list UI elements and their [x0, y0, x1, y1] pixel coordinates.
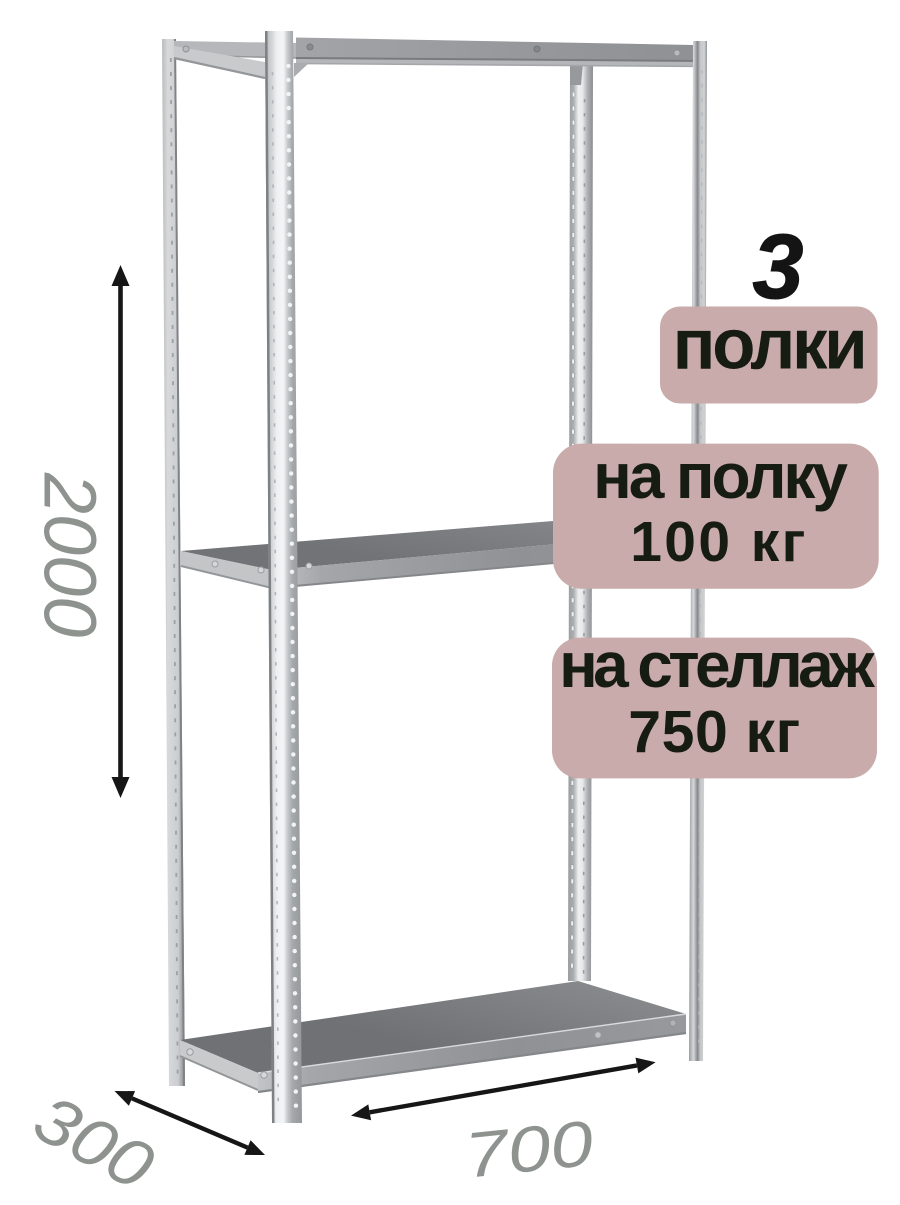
svg-text:3: 3: [752, 216, 803, 318]
svg-text:100 кг: 100 кг: [630, 510, 808, 574]
svg-text:750 кг: 750 кг: [628, 699, 801, 765]
svg-text:700: 700: [462, 1107, 597, 1192]
svg-text:2000: 2000: [29, 472, 112, 638]
svg-text:на полку: на полку: [593, 440, 848, 512]
svg-text:полки: полки: [673, 306, 865, 385]
svg-text:на стеллаж: на стеллаж: [559, 629, 875, 701]
